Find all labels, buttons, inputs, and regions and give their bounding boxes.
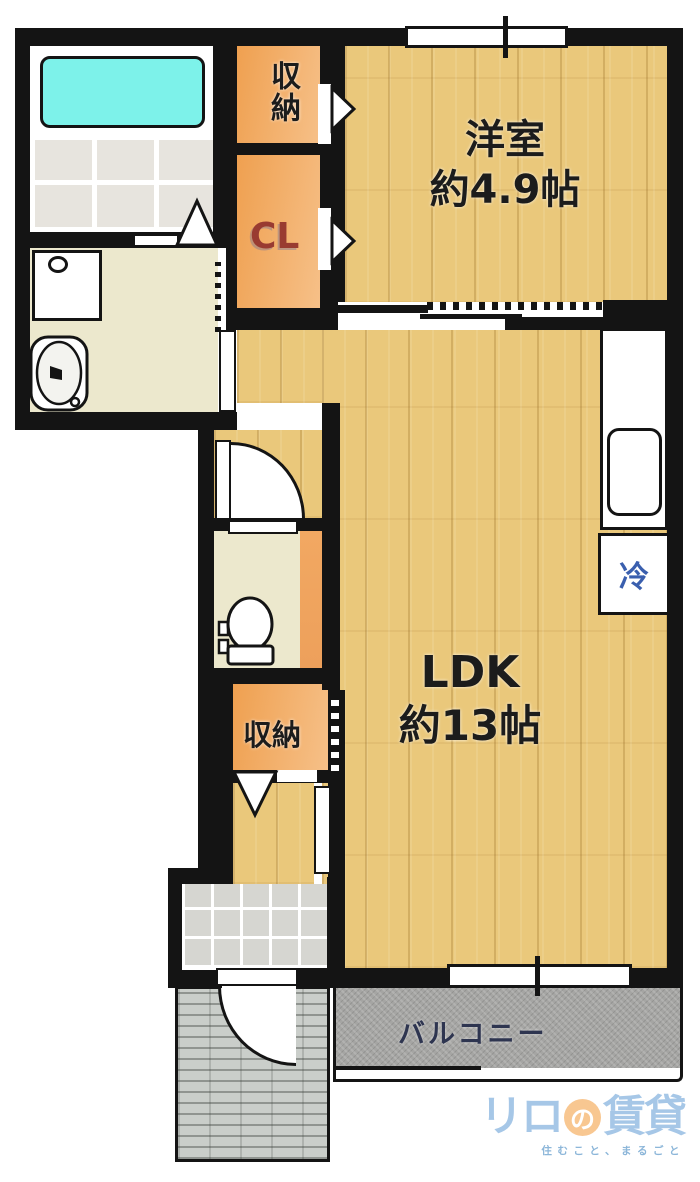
divider-line-a xyxy=(338,305,428,313)
brand-logo: リロ の 賃貸 住むこと、まるごと xyxy=(470,1096,685,1158)
entrance-door-leaf xyxy=(216,968,298,986)
hallway-upper-floor xyxy=(237,330,322,403)
storage-lower-label: 収納 xyxy=(243,712,301,754)
toilet-shelf-strip xyxy=(300,531,322,668)
cl-label: CL xyxy=(250,216,299,257)
ldk-name: LDK xyxy=(350,645,590,700)
balcony-inner-line xyxy=(333,1066,481,1070)
entrance-tile-floor xyxy=(182,884,327,968)
logo-text-part1: リロ xyxy=(480,1096,562,1139)
storage-top-label: 収納 xyxy=(260,60,304,124)
divider-dotted-line xyxy=(427,302,603,310)
wall-closet-divider xyxy=(237,143,320,155)
wall-hall-ldk xyxy=(322,403,340,690)
wall-left-mid xyxy=(198,428,214,884)
western-room-label: 洋室 約4.9帖 xyxy=(390,115,620,215)
wall-entrance-left xyxy=(168,884,182,988)
ldk-area: 約13帖 xyxy=(350,700,590,753)
wall-entrance-top xyxy=(168,868,233,884)
wall-top xyxy=(15,28,683,46)
toilet-door-leaf xyxy=(215,440,231,520)
refrigerator-label: 冷 xyxy=(619,552,649,596)
refrigerator-space: 冷 xyxy=(598,533,670,615)
wall-cl-bottom xyxy=(226,308,338,330)
storage-lower-door-triangle xyxy=(231,770,279,818)
storage-right-opening-dashes xyxy=(331,697,339,771)
divider-block xyxy=(505,317,607,330)
wall-right xyxy=(667,46,683,988)
western-room-window xyxy=(405,26,568,48)
wall-bottom-c xyxy=(632,968,683,988)
bathroom-door-threshold xyxy=(133,234,179,247)
logo-text-part2: 賃貸 xyxy=(603,1096,685,1139)
toilet-door-threshold xyxy=(228,520,298,534)
balcony-label: バルコニー xyxy=(398,1012,547,1051)
brand-logo-row: リロ の 賃貸 xyxy=(470,1096,685,1139)
washer-faucet-circle xyxy=(48,256,68,273)
toilet xyxy=(217,596,279,668)
bathtub xyxy=(40,56,205,128)
vanity-basin xyxy=(28,334,94,414)
wall-toilet-bottom xyxy=(214,668,340,684)
cl-door-triangle xyxy=(330,218,356,264)
logo-tagline: 住むこと、まるごと xyxy=(470,1143,685,1158)
storage-lower-threshold xyxy=(277,770,317,782)
hall-ldk-door-panel xyxy=(314,786,331,874)
storage-top-door-triangle xyxy=(330,86,356,132)
western-room-name: 洋室 xyxy=(390,115,620,165)
wall-bottom-b xyxy=(296,968,447,988)
ldk-label: LDK 約13帖 xyxy=(350,645,590,753)
bathroom-door-triangle xyxy=(174,198,220,248)
wall-closet-left xyxy=(226,248,237,308)
western-room-area: 約4.9帖 xyxy=(390,165,620,215)
western-window-tick xyxy=(503,16,508,58)
washroom-opening-dots xyxy=(215,262,221,332)
washroom-door-panel xyxy=(219,330,236,412)
balcony-window-tick xyxy=(535,956,540,996)
divider-right-block xyxy=(603,300,667,330)
kitchen-sink xyxy=(607,428,662,516)
logo-circle-no: の xyxy=(564,1099,601,1136)
floor-plan: 冷 xyxy=(0,0,700,1182)
